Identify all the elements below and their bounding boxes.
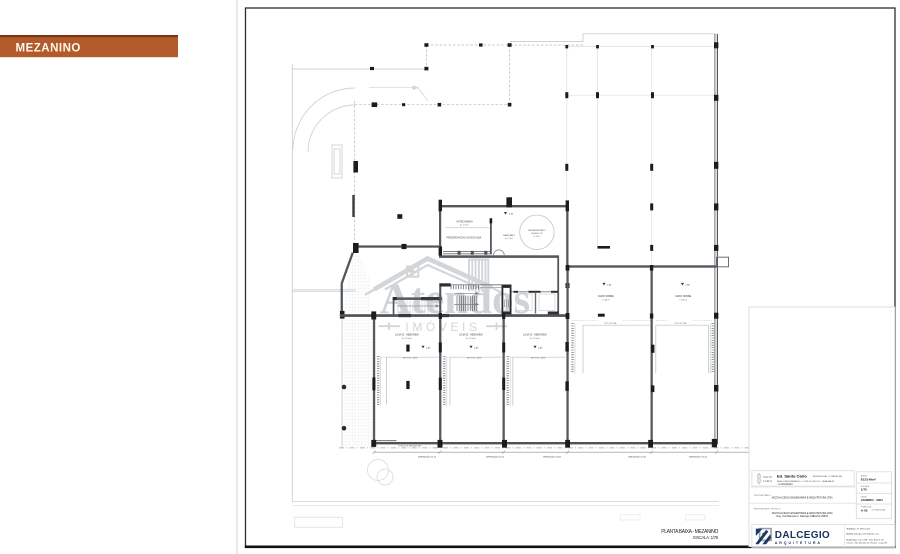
svg-text:A: 35,00m²: A: 35,00m²	[466, 337, 476, 340]
svg-text:IMÓVEIS: IMÓVEIS	[405, 319, 480, 334]
svg-text:ANEXAÇÃO 01-A: ANEXAÇÃO 01-A	[418, 456, 436, 459]
svg-text:8123.49m²: 8123.49m²	[861, 477, 876, 481]
svg-text:JANEIRO - 2024: JANEIRO - 2024	[861, 498, 883, 502]
svg-text:A: 2,5m²: A: 2,5m²	[505, 237, 513, 240]
svg-text:PRESERVAÇÃO DA ESCADA: PRESERVAÇÃO DA ESCADA	[446, 234, 481, 239]
svg-text:1/75: 1/75	[861, 488, 867, 492]
svg-text:ANEXAÇÃO 05-A: ANEXAÇÃO 05-A	[689, 456, 707, 459]
svg-text:A-05: A-05	[861, 508, 868, 512]
svg-text:2,80: 2,80	[607, 285, 612, 287]
svg-text:TETO Nº TAL: TETO Nº TAL	[674, 322, 687, 325]
svg-text:ANEXAÇÃO 03-A: ANEXAÇÃO 03-A	[543, 456, 561, 459]
svg-text:2,80: 2,80	[686, 285, 691, 287]
svg-text:ANTECÂMARA: ANTECÂMARA	[456, 221, 473, 224]
svg-text:05 PRANCHAS: 05 PRANCHAS	[872, 509, 887, 512]
svg-text:LOJA 03 - MEZANINO: LOJA 03 - MEZANINO	[523, 334, 547, 337]
svg-text:LOJA 02 - MEZANINO: LOJA 02 - MEZANINO	[459, 334, 483, 337]
svg-text:PROPRIETÁRIO:: PROPRIETÁRIO:	[754, 494, 772, 497]
svg-text:TRECHO A PAVIMENTAR: TRECHO A PAVIMENTAR	[398, 445, 422, 448]
svg-text:Eng. Civil Marcélio C. Dalcegi: Eng. Civil Marcélio C. Dalcegio CREA/SC …	[776, 515, 828, 518]
svg-text:LOJA 01 - MEZANINO: LOJA 01 - MEZANINO	[395, 334, 419, 337]
svg-text:RESPONSÁVEL TÉCNICO:: RESPONSÁVEL TÉCNICO:	[754, 508, 782, 511]
svg-text:A: 35,00m²: A: 35,00m²	[530, 337, 540, 340]
svg-text:TETO IN. 2,80m: TETO IN. 2,80m	[530, 357, 545, 359]
svg-text:TETO Nº TAL: TETO Nº TAL	[604, 322, 617, 325]
svg-text:TETO IN. 2,80m: TETO IN. 2,80m	[466, 357, 481, 359]
svg-text:- GUANABARA: - GUANABARA	[777, 483, 793, 486]
svg-text:VAZIO SOBRE: VAZIO SOBRE	[675, 295, 691, 298]
svg-text:58.000 LTS: 58.000 LTS	[531, 233, 543, 235]
svg-text:ARQUITETURA: ARQUITETURA	[775, 541, 822, 545]
svg-text:A: 35,00m²: A: 35,00m²	[402, 337, 412, 340]
svg-text:RESERVATÓRIO: RESERVATÓRIO	[528, 229, 545, 232]
svg-text:ANEXAÇÃO 04-A: ANEXAÇÃO 04-A	[628, 456, 646, 459]
svg-text:CARLO: CARLO	[763, 480, 772, 483]
svg-text:Centro - Rio Necada de Parque: Centro - Rio Necada de Parque - Lage 88	[847, 541, 888, 544]
svg-text:LOJA 04: LOJA 04	[602, 298, 611, 301]
svg-text:0,45: 0,45	[509, 214, 514, 216]
svg-text:2,80: 2,80	[426, 348, 431, 350]
svg-text:RUA JOSÉ BONIFÁCIO - LOTE 05,: RUA JOSÉ BONIFÁCIO - LOTE 05, 06 E 07 - …	[777, 480, 835, 483]
svg-text:Email: dalcegio.adm@gmail.com: Email: dalcegio.adm@gmail.com	[847, 534, 880, 536]
svg-text:Telefone: 47 3345-0102: Telefone: 47 3345-0102	[847, 529, 871, 531]
svg-text:- RESIDENCIAL | COMERCIAL: - RESIDENCIAL | COMERCIAL	[812, 475, 843, 478]
svg-text:DALCEGIO: DALCEGIO	[775, 530, 830, 541]
svg-text:LOJA 05: LOJA 05	[679, 298, 688, 301]
svg-text:Endereço: Curva BR - Rua Berli: Endereço: Curva BR - Rua Berlim, 65	[847, 538, 885, 541]
svg-text:A: 4,70m²: A: 4,70m²	[460, 224, 469, 227]
svg-text:2,80: 2,80	[474, 348, 479, 350]
svg-text:SANITÁRIO: SANITÁRIO	[503, 234, 515, 237]
svg-text:MCZ DALCEGIO ENGENHARIA E ARQU: MCZ DALCEGIO ENGENHARIA E ARQUITETURA LT…	[772, 497, 833, 500]
svg-text:VAZIO SOBRE: VAZIO SOBRE	[598, 295, 614, 298]
svg-text:2,80: 2,80	[538, 348, 543, 350]
svg-text:MEZANINO: MEZANINO	[16, 43, 81, 55]
svg-text:ANEXAÇÃO 02-A: ANEXAÇÃO 02-A	[486, 456, 504, 459]
svg-text:TETO IN. 2,80m: TETO IN. 2,80m	[402, 357, 417, 359]
svg-text:Ed. Santo Carlo: Ed. Santo Carlo	[777, 473, 807, 478]
svg-text:SANTO: SANTO	[763, 476, 772, 479]
svg-text:(2 UNI.): (2 UNI.)	[533, 236, 540, 238]
svg-text:ESCALA: 1/75: ESCALA: 1/75	[693, 535, 719, 540]
